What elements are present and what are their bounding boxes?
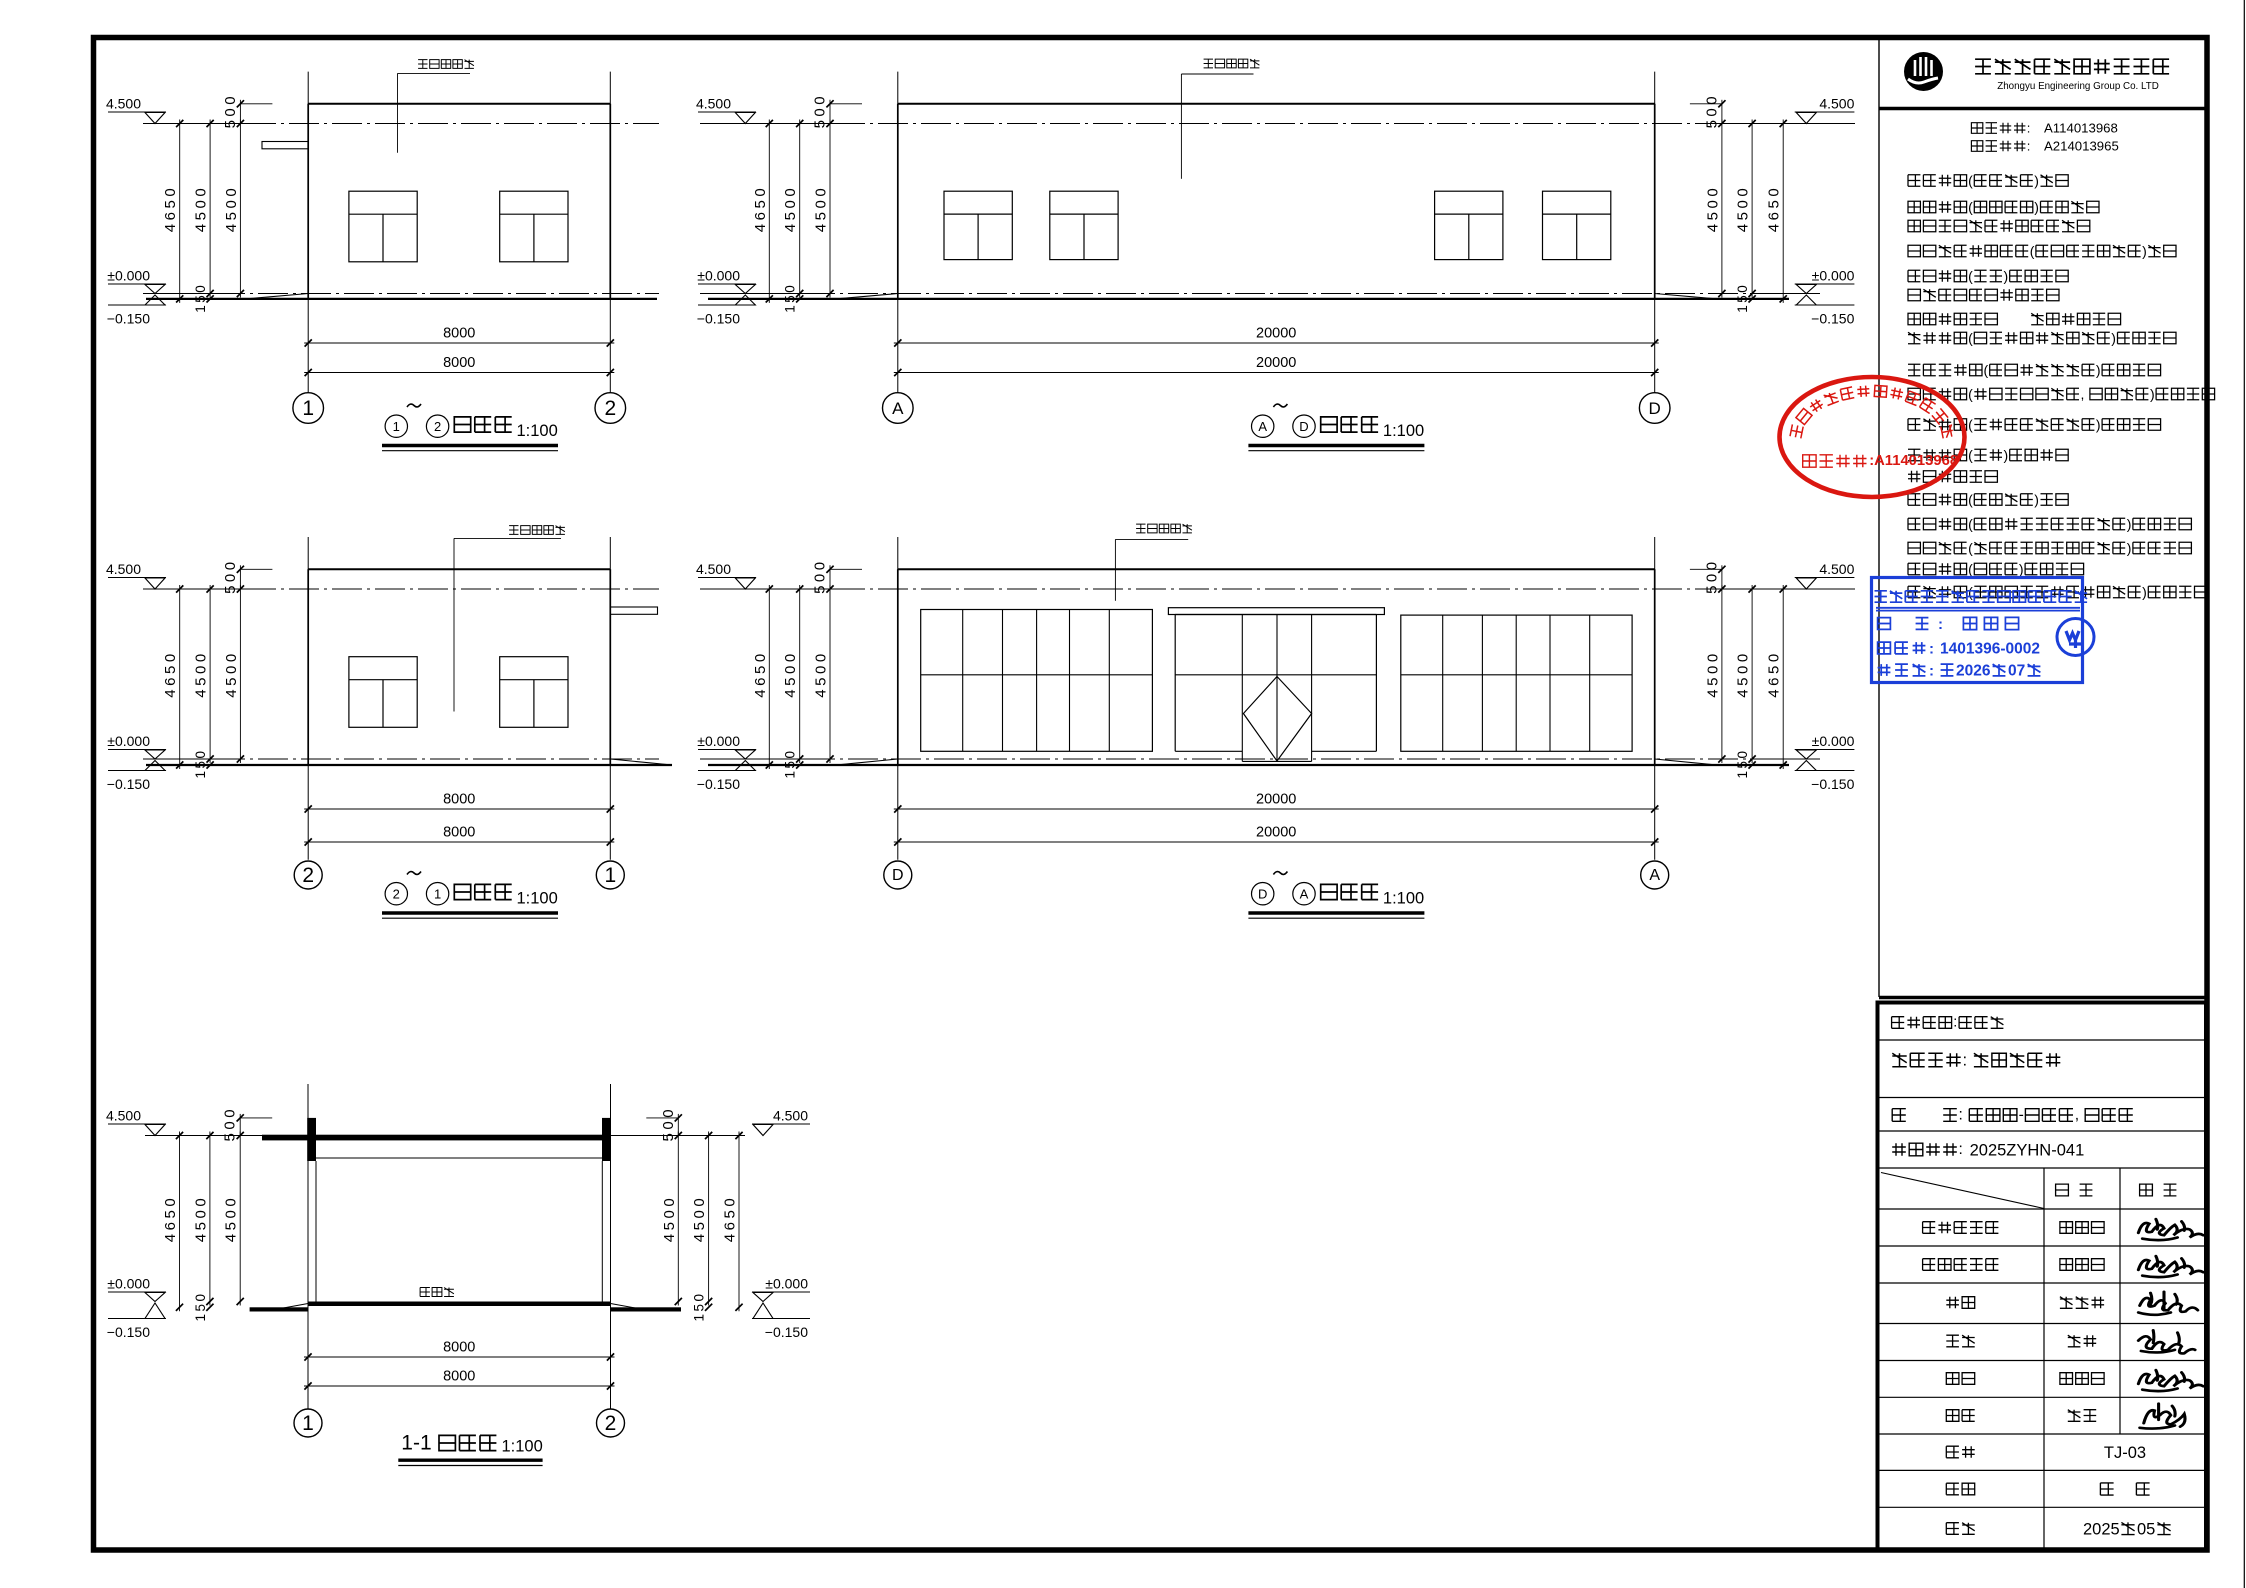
svg-text:(: ( [1968,540,1973,556]
svg-text:4650: 4650 [1766,185,1783,232]
svg-text:4500: 4500 [193,650,210,697]
svg-text:500: 500 [1703,558,1720,594]
svg-text:): ) [2142,243,2147,259]
svg-text:(: ( [1968,268,1973,284]
svg-text:4500: 4500 [813,185,830,232]
svg-text:4500: 4500 [691,1195,708,1242]
svg-text:): ) [2019,561,2024,577]
svg-text:4650: 4650 [1766,650,1783,697]
svg-text:150: 150 [193,1291,208,1321]
svg-text:05: 05 [2137,1521,2155,1539]
svg-text:Zhongyu Engineering Group Co.: Zhongyu Engineering Group Co. LTD [1997,81,2159,92]
svg-text:1: 1 [434,887,441,902]
svg-text:500: 500 [222,93,239,129]
svg-text:D: D [1299,419,1308,434]
svg-text:(: ( [1968,199,1973,215]
svg-text:(: ( [1968,386,1973,402]
svg-text:±0.000: ±0.000 [107,268,150,284]
svg-text:1: 1 [302,397,314,420]
svg-text:): ) [2150,386,2155,402]
svg-text:4500: 4500 [223,1195,240,1242]
svg-text:1-1: 1-1 [401,1432,431,1455]
svg-text:): ) [2127,540,2132,556]
svg-text:20000: 20000 [1256,792,1296,808]
svg-text:4.500: 4.500 [696,561,731,577]
svg-text:500: 500 [811,558,828,594]
svg-text::: : [2027,139,2031,154]
svg-text:20000: 20000 [1256,355,1296,371]
svg-text:150: 150 [783,283,798,313]
svg-text:): ) [2111,330,2116,346]
svg-text:4.500: 4.500 [1819,561,1854,577]
svg-text:4500: 4500 [223,650,240,697]
svg-text:2: 2 [434,419,441,434]
svg-text:D: D [892,867,904,884]
svg-text::: : [2027,121,2031,136]
svg-text:TJ-03: TJ-03 [2104,1444,2146,1462]
svg-text:2: 2 [604,397,616,420]
svg-text:(: ( [1984,362,1989,378]
svg-text:1: 1 [302,1412,314,1435]
svg-text:): ) [2034,173,2039,189]
svg-text:(: ( [1968,173,1973,189]
svg-text:500: 500 [222,1106,239,1142]
svg-text:A214013965: A214013965 [2044,139,2119,154]
svg-text:1: 1 [604,864,616,887]
svg-text:4500: 4500 [193,185,210,232]
svg-text:−0.150: −0.150 [697,311,740,327]
svg-text:−0.150: −0.150 [1811,311,1854,327]
svg-text:8000: 8000 [443,825,475,841]
svg-text:150: 150 [193,283,208,313]
svg-text::: : [1959,1141,1963,1158]
svg-text:4500: 4500 [1735,650,1752,697]
svg-text:1401396-0002: 1401396-0002 [1940,641,2040,658]
svg-text::: : [1959,1107,1963,1124]
svg-text:): ) [2096,362,2101,378]
svg-text:−0.150: −0.150 [107,311,150,327]
svg-text:8000: 8000 [443,792,475,808]
svg-text:±0.000: ±0.000 [107,1276,150,1292]
svg-text:(: ( [1968,492,1973,508]
svg-text:-: - [2019,1107,2024,1124]
svg-text:4.500: 4.500 [1819,96,1854,112]
svg-text:(: ( [1968,417,1973,433]
svg-text:(: ( [1968,447,1973,463]
svg-text:±0.000: ±0.000 [107,733,150,749]
svg-text:150: 150 [1735,748,1750,778]
svg-text:4.500: 4.500 [696,96,731,112]
svg-text:D: D [1649,399,1661,418]
svg-text:(: ( [2030,243,2035,259]
svg-text:,: , [2075,1107,2079,1124]
svg-text:1:100: 1:100 [517,422,558,440]
svg-text:4650: 4650 [752,650,769,697]
svg-text:−0.150: −0.150 [1811,776,1854,792]
svg-text:(: ( [1968,584,1973,600]
svg-text:±0.000: ±0.000 [697,733,740,749]
svg-text:(: ( [1968,561,1973,577]
svg-text:4.500: 4.500 [106,96,141,112]
svg-text::: : [1929,641,1934,658]
svg-text:1:100: 1:100 [517,890,558,908]
svg-text:): ) [2004,268,2009,284]
svg-text:): ) [2004,447,2009,463]
svg-text:8000: 8000 [443,355,475,371]
svg-text:A: A [892,399,904,418]
svg-text:150: 150 [692,1291,707,1321]
svg-text:±0.000: ±0.000 [1812,733,1855,749]
svg-text:4500: 4500 [661,1195,678,1242]
svg-text::: : [1938,616,1943,633]
svg-text:D: D [1258,887,1267,902]
svg-text:8000: 8000 [443,326,475,342]
svg-text:500: 500 [660,1106,677,1142]
svg-text:A114013968: A114013968 [2044,121,2118,136]
svg-text:1:100: 1:100 [1383,890,1424,908]
svg-text:4650: 4650 [722,1195,739,1242]
svg-text:(: ( [1968,516,1973,532]
svg-text:4.500: 4.500 [773,1108,808,1124]
svg-text:2: 2 [393,887,400,902]
svg-text:20000: 20000 [1256,825,1296,841]
svg-text:500: 500 [812,93,829,129]
svg-text:(: ( [1968,330,1973,346]
svg-text:1:100: 1:100 [1383,422,1424,440]
svg-text:150: 150 [1735,283,1750,313]
svg-text:A: A [1649,867,1660,884]
svg-text:A: A [1258,419,1267,434]
svg-text:150: 150 [193,748,208,778]
svg-text:): ) [2096,417,2101,433]
svg-text:4650: 4650 [162,650,179,697]
svg-text:4500: 4500 [192,1195,209,1242]
svg-text:): ) [2127,516,2132,532]
svg-text:±0.000: ±0.000 [1812,268,1855,284]
svg-text::A114013968: :A114013968 [1869,453,1958,469]
svg-text:4500: 4500 [782,650,799,697]
svg-text:150: 150 [783,748,798,778]
svg-text:4650: 4650 [162,185,179,232]
svg-text:−0.150: −0.150 [697,776,740,792]
svg-text:−0.150: −0.150 [107,1324,150,1340]
svg-text:4500: 4500 [223,185,240,232]
svg-text:): ) [2034,199,2039,215]
svg-text:2: 2 [302,864,314,887]
svg-text:2025ZYHN-041: 2025ZYHN-041 [1970,1142,2085,1160]
svg-text:): ) [2142,584,2147,600]
svg-text:8000: 8000 [443,1340,475,1356]
svg-text:8000: 8000 [443,1369,475,1385]
svg-text:−0.150: −0.150 [107,776,150,792]
svg-text:2026: 2026 [1956,663,1991,680]
svg-text:07: 07 [2008,663,2025,680]
svg-text:500: 500 [222,558,239,594]
svg-text:2: 2 [605,1412,617,1435]
svg-text:±0.000: ±0.000 [765,1276,808,1292]
svg-text:1: 1 [393,419,400,434]
svg-text:A: A [1300,887,1309,902]
svg-text:1:100: 1:100 [502,1438,543,1456]
svg-text:−0.150: −0.150 [765,1324,808,1340]
svg-text:2025: 2025 [2083,1521,2120,1539]
svg-text:4500: 4500 [813,650,830,697]
svg-text:20000: 20000 [1256,326,1296,342]
svg-text::: : [1963,1051,1968,1070]
svg-text:±0.000: ±0.000 [697,268,740,284]
svg-text:4650: 4650 [752,185,769,232]
svg-text:4650: 4650 [162,1195,179,1242]
svg-text::: : [1929,663,1934,680]
svg-text:4500: 4500 [1735,185,1752,232]
svg-text:4500: 4500 [782,185,799,232]
svg-text:): ) [2034,492,2039,508]
svg-text:4500: 4500 [1704,185,1721,232]
svg-text:,: , [2081,386,2085,402]
svg-text:500: 500 [1703,93,1720,129]
svg-text:4.500: 4.500 [106,561,141,577]
svg-text:4.500: 4.500 [106,1108,141,1124]
svg-text::: : [1953,1015,1957,1031]
svg-text:4500: 4500 [1704,650,1721,697]
